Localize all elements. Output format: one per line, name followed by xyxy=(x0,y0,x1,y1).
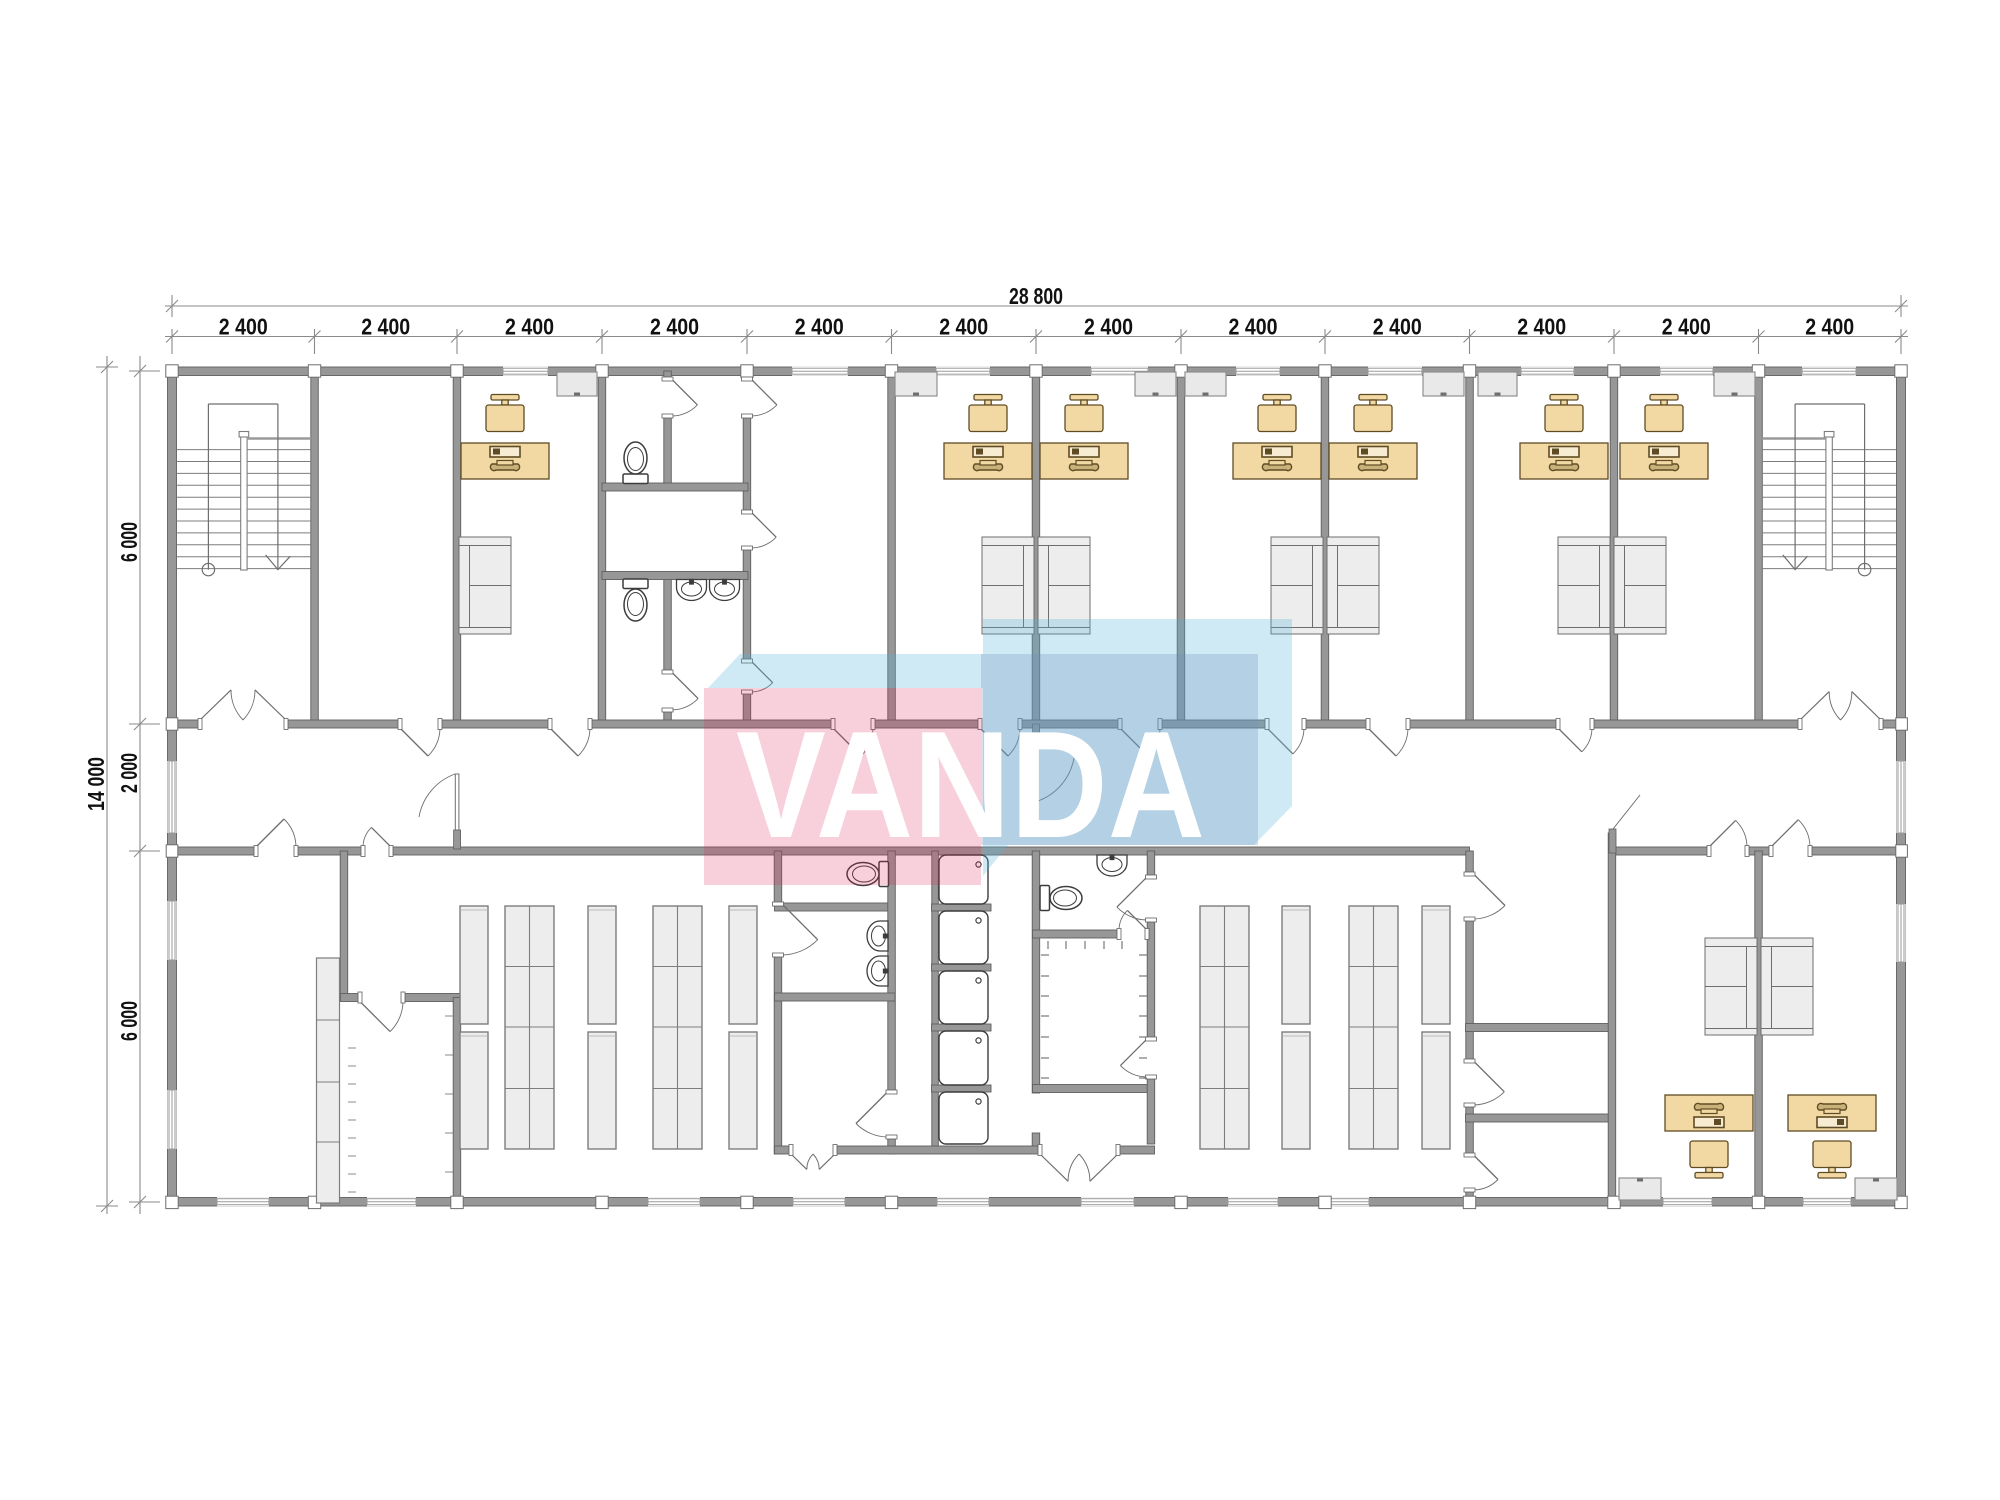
svg-text:14 000: 14 000 xyxy=(83,757,109,811)
svg-text:VANDA: VANDA xyxy=(736,700,1205,870)
svg-text:2 400: 2 400 xyxy=(1084,314,1133,340)
svg-text:2 400: 2 400 xyxy=(795,314,844,340)
svg-text:2 400: 2 400 xyxy=(650,314,699,340)
svg-text:2 400: 2 400 xyxy=(1373,314,1422,340)
svg-text:28 800: 28 800 xyxy=(1009,283,1063,309)
svg-text:2 400: 2 400 xyxy=(1517,314,1566,340)
svg-text:2 400: 2 400 xyxy=(1805,314,1854,340)
svg-text:6 000: 6 000 xyxy=(116,522,142,562)
svg-text:6 000: 6 000 xyxy=(116,1001,142,1041)
svg-text:2 400: 2 400 xyxy=(361,314,410,340)
svg-text:2 400: 2 400 xyxy=(505,314,554,340)
svg-text:2 000: 2 000 xyxy=(116,753,142,793)
svg-text:2 400: 2 400 xyxy=(219,314,268,340)
svg-text:2 400: 2 400 xyxy=(1229,314,1278,340)
svg-text:2 400: 2 400 xyxy=(1662,314,1711,340)
svg-text:2 400: 2 400 xyxy=(939,314,988,340)
